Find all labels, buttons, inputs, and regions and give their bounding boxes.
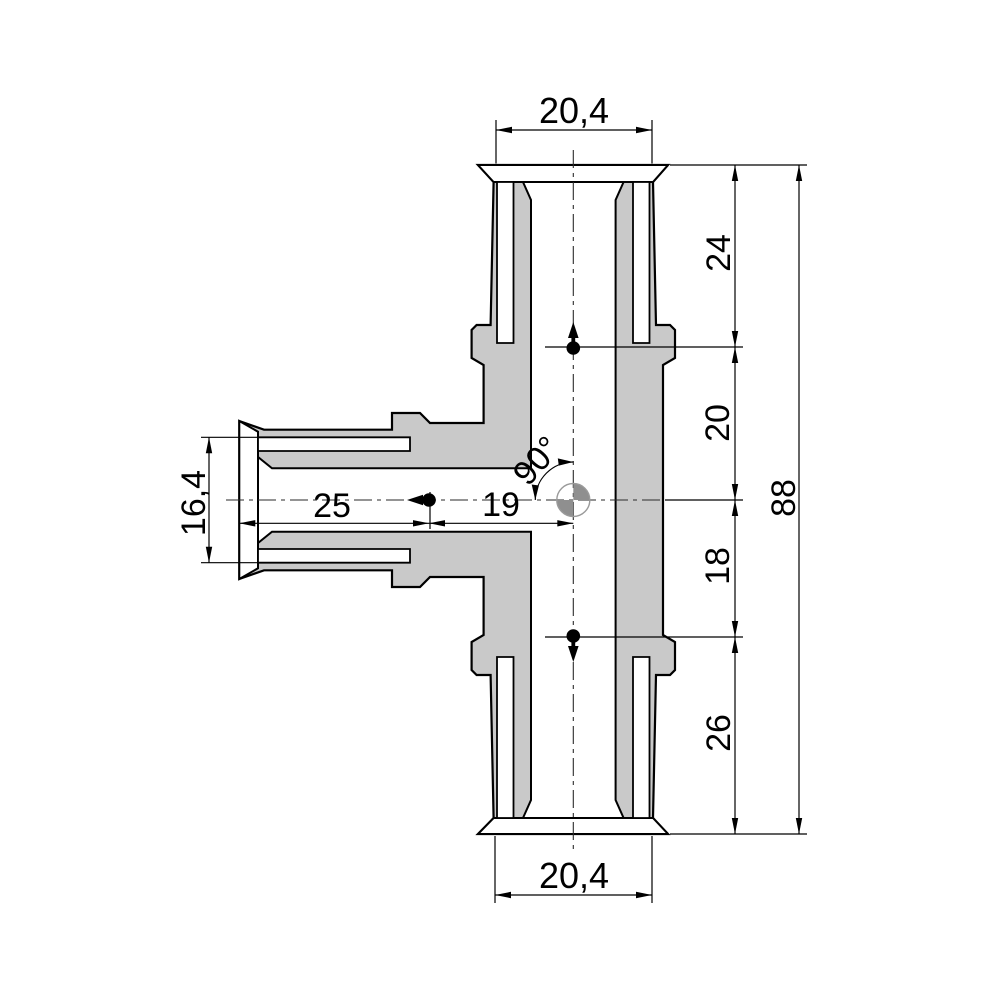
drawing-sheet: 20,4 20,4 24 20 18 26 88 16,4 25 19 90° (0, 0, 1000, 1000)
dimension-label-top-width: 20,4 (539, 90, 609, 131)
dimension-label-16-4: 16,4 (175, 470, 213, 536)
top-socket-slot-left (497, 182, 514, 343)
dimension-label-88: 88 (765, 479, 803, 517)
dimension-label-24: 24 (700, 234, 738, 272)
technical-drawing-canvas: 20,4 20,4 24 20 18 26 88 16,4 25 19 90° (0, 0, 1000, 1000)
dimension-label-18: 18 (699, 547, 737, 585)
left-socket-slot-bottom (258, 549, 410, 563)
dimension-label-25: 25 (313, 487, 351, 525)
left-socket-slot-top (258, 437, 410, 451)
dimension-label-20: 20 (699, 404, 737, 442)
top-socket-slot-right (633, 182, 650, 343)
bottom-socket-slot-left (497, 657, 514, 818)
bottom-socket-slot-right (633, 657, 650, 818)
dimension-label-19: 19 (482, 486, 520, 524)
dimension-label-26: 26 (700, 714, 738, 752)
dimension-label-bottom-width: 20,4 (539, 855, 609, 896)
centroid-marker (557, 484, 590, 517)
